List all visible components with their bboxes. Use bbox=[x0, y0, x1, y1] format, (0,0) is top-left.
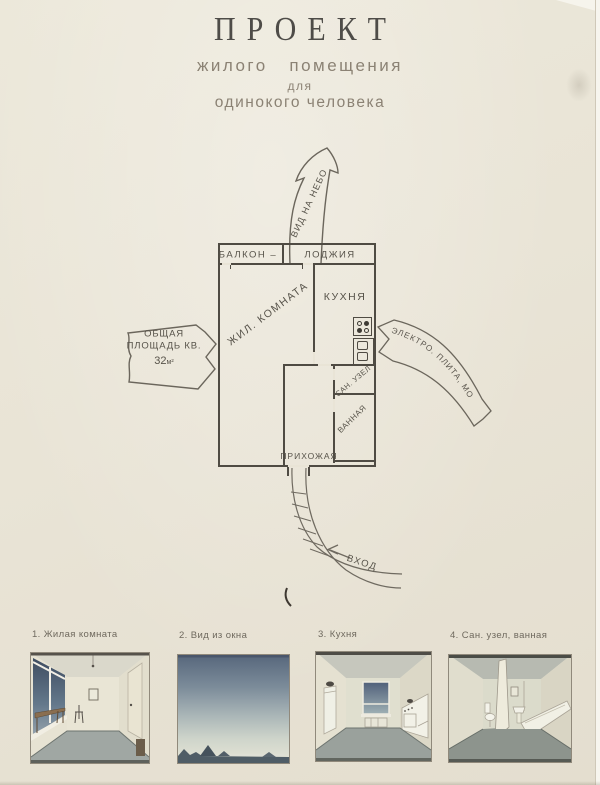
thumbnail-caption-kitchen: 3. Кухня bbox=[318, 629, 357, 640]
burner-icon bbox=[364, 328, 369, 333]
sink-basin-icon bbox=[357, 341, 368, 350]
entrance-door-gap bbox=[288, 465, 309, 467]
balcony-door-tick-1 bbox=[230, 265, 231, 269]
area-label-line-2: ПЛОЩАДЬ КВ. bbox=[127, 341, 202, 352]
balcony-bottom-wall bbox=[218, 263, 376, 265]
sink-icon bbox=[353, 338, 374, 365]
utilities-ribbon-arrow: ЭЛЕКТРО. ПЛИТА, МОЙКА bbox=[0, 0, 491, 426]
balcony-door-gap-right bbox=[303, 263, 313, 265]
kitchen-wall bbox=[313, 263, 315, 366]
thumbnail-caption-window-view: 2. Вид из окна bbox=[179, 630, 247, 641]
burner-icon bbox=[357, 328, 362, 333]
san-uzel-door-gap bbox=[333, 369, 335, 380]
burner-icon bbox=[364, 321, 369, 326]
stove-icon bbox=[353, 317, 372, 336]
area-value-number: 32 bbox=[154, 355, 166, 367]
paper-smudge bbox=[566, 68, 592, 102]
area-value: 32м² bbox=[154, 351, 173, 369]
entrance-jamb-right bbox=[308, 467, 310, 476]
thumbnail-kitchen bbox=[315, 651, 432, 762]
paper-right-edge bbox=[595, 0, 600, 785]
window-view-illustration bbox=[177, 654, 290, 764]
balcony-label: БАЛКОН – bbox=[219, 250, 277, 261]
burner-icon bbox=[357, 321, 362, 326]
thumbnail-caption-living-room: 1. Жилая комната bbox=[32, 629, 118, 640]
plan-outer-wall-left bbox=[218, 243, 220, 467]
plan-outer-wall-right bbox=[374, 243, 376, 467]
thumbnail-bathroom bbox=[448, 654, 572, 763]
kitchen-label: КУХНЯ bbox=[324, 291, 367, 303]
thumbnail-window-view bbox=[177, 654, 290, 764]
balcony-divider-wall bbox=[282, 243, 284, 265]
paper-bottom-shadow bbox=[0, 781, 600, 785]
kitchen-door-gap bbox=[318, 364, 331, 366]
bathroom-illustration bbox=[448, 654, 572, 763]
living-room-illustration bbox=[30, 652, 150, 764]
thumbnail-caption-bathroom: 4. Сан. узел, ванная bbox=[450, 630, 547, 641]
hallway-label: ПРИХОЖАЯ bbox=[280, 451, 337, 461]
thumbnail-living-room bbox=[30, 652, 150, 764]
area-label-line-1: ОБЩАЯ bbox=[144, 329, 184, 340]
entrance-walkway bbox=[291, 468, 402, 588]
balcony-door-tick-2 bbox=[302, 265, 303, 269]
pen-mark bbox=[286, 588, 291, 606]
sky-view-arrow bbox=[290, 148, 338, 264]
entrance-jamb-left bbox=[287, 467, 289, 476]
kitchen-illustration bbox=[315, 651, 432, 762]
loggia-label: ЛОДЖИЯ bbox=[304, 250, 355, 261]
area-value-unit: м² bbox=[167, 359, 174, 366]
sink-basin-icon bbox=[357, 352, 368, 361]
bath-block-bottom-wall bbox=[333, 460, 376, 462]
kitchen-balcony-side-gap bbox=[313, 352, 315, 364]
plan-outer-wall-top bbox=[218, 243, 376, 245]
bathroom-door-gap bbox=[333, 399, 335, 412]
poster-scan: ПРОЕКТ жилого помещения для одинокого че… bbox=[0, 0, 600, 785]
